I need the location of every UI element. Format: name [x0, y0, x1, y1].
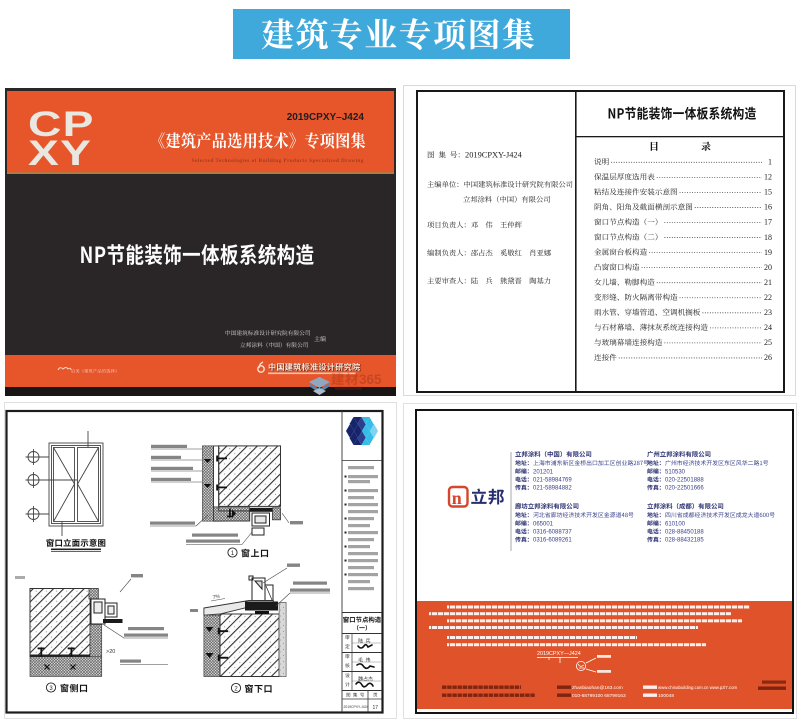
svg-text:020-22501888: 020-22501888 [665, 478, 704, 484]
svg-text:>20: >20 [106, 649, 115, 655]
svg-text:2019CPXY-J424: 2019CPXY-J424 [344, 705, 369, 709]
svg-text:17: 17 [373, 705, 379, 711]
svg-text:020-22501666: 020-22501666 [665, 486, 704, 492]
svg-text:2019CPXY—J424: 2019CPXY—J424 [537, 651, 581, 657]
svg-text:021-58984769: 021-58984769 [533, 478, 572, 484]
svg-text:510530: 510530 [665, 469, 686, 475]
svg-text:www.chinabuilding.com.cn www: www.chinabuilding.com.cn www.pzl7.com [658, 685, 737, 690]
svg-text:010-68799100 68799163: 010-68799100 68799163 [572, 693, 626, 699]
svg-text:201201: 201201 [533, 469, 554, 475]
svg-text:021-58984882: 021-58984882 [533, 486, 572, 492]
svg-text:100048: 100048 [658, 693, 674, 699]
svg-text:028-88450188: 028-88450188 [665, 530, 704, 536]
svg-text:0316-6088737: 0316-6088737 [533, 530, 572, 536]
svg-text:610100: 610100 [665, 521, 686, 527]
svg-text:0316-6089261: 0316-6089261 [533, 538, 572, 544]
svg-text:zhanbiaohan@163.com: zhanbiaohan@163.com [572, 685, 623, 691]
svg-text:n: n [452, 488, 462, 508]
svg-text:065001: 065001 [533, 521, 554, 527]
svg-text:028-88432185: 028-88432185 [665, 538, 704, 544]
